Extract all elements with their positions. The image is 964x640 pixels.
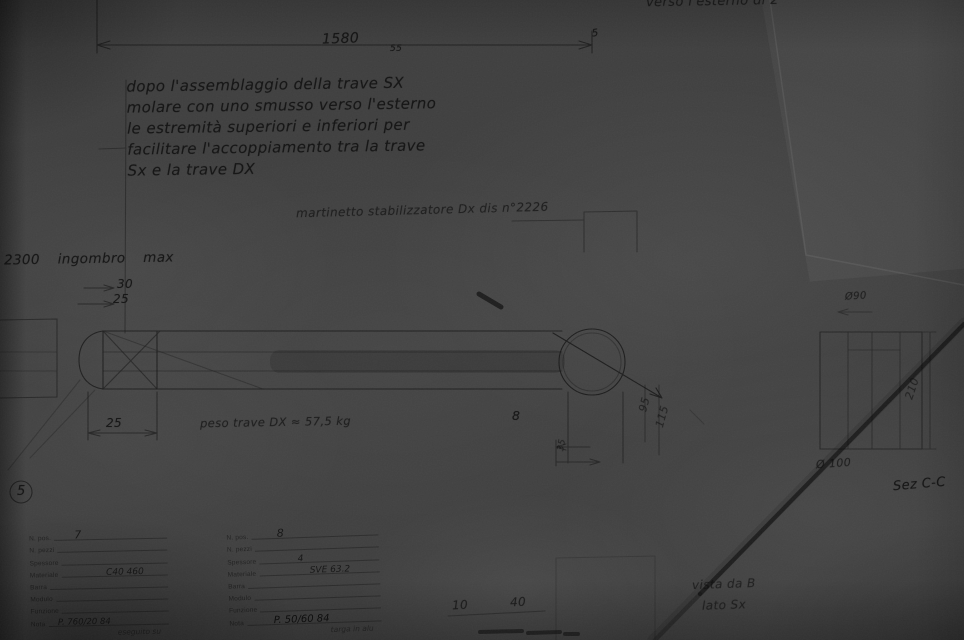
- field-label: N. pos.: [29, 535, 51, 542]
- field-value: 4: [297, 554, 303, 564]
- field-value: P. 50/60 84: [274, 613, 330, 626]
- vista-note: vista da B: [692, 576, 756, 592]
- field-line: [62, 601, 169, 614]
- field-line: [57, 540, 167, 553]
- field-value: P. 760/20 84: [58, 616, 111, 627]
- dia-100-label: Ø 100: [816, 456, 852, 471]
- field-value: 8: [277, 527, 284, 540]
- ingombro-note: 2300 ingombro max: [4, 250, 174, 269]
- field-label: Modulo: [30, 596, 53, 603]
- field-value: 7: [74, 529, 81, 542]
- field-label: Spessore: [30, 559, 59, 567]
- field-label: N. pezzi: [227, 546, 252, 554]
- field-label: Barra: [30, 584, 47, 591]
- bracket-below-circle: [556, 392, 623, 466]
- field-label: N. pezzi: [29, 547, 54, 555]
- field-value: C40 460: [106, 567, 144, 578]
- dim-25-upper-label: 25: [113, 292, 129, 306]
- dim-1580-tolerance: 55: [390, 44, 402, 54]
- dim-10-label: 10: [452, 598, 469, 613]
- dim-25-lower-label: 25: [106, 416, 122, 430]
- beam-end-circle: [553, 329, 662, 398]
- dia-90-label: Ø90: [845, 290, 867, 302]
- crease-shadow-line: [652, 0, 964, 640]
- field-line: [56, 589, 169, 602]
- blueprint-photo: dopo l'assemblaggio della trave SX molar…: [0, 0, 964, 640]
- field-label: Spessore: [227, 558, 256, 566]
- dim-25-lower-lines: [88, 392, 157, 440]
- field-label: N. pos.: [226, 534, 248, 542]
- field-label: Modulo: [228, 595, 251, 603]
- lato-note: lato Sx: [702, 597, 747, 613]
- dark-pencil-mark: [479, 294, 501, 307]
- dim-8-label: 8: [512, 408, 520, 423]
- peso-note: peso trave DX ≈ 57,5 kg: [200, 414, 351, 431]
- field-label: Nota: [229, 620, 244, 628]
- field-line: C40 460: [61, 564, 168, 577]
- left-end-box: [0, 319, 57, 398]
- assembly-note: dopo l'assemblaggio della trave SX molar…: [126, 71, 497, 181]
- dim-5-label: 5: [591, 28, 599, 40]
- dim-30-label: 30: [117, 277, 133, 291]
- construction-diagonals: [8, 380, 95, 470]
- beam-shading: [270, 350, 565, 373]
- title-block-2: N. pos. 8 N. pezzi Spessore 4 Materiale …: [226, 524, 382, 637]
- field-label: Nota: [31, 621, 46, 628]
- dim-35-label: 35: [556, 438, 568, 452]
- field-label: Barra: [228, 583, 245, 591]
- dim-40-label: 40: [510, 595, 527, 610]
- martinetto-leader: [512, 211, 637, 252]
- field-line: [61, 552, 167, 565]
- field-line: P. 760/20 84: [48, 613, 169, 627]
- dim-1580-label: 1580: [322, 30, 360, 47]
- title-block-1: N. pos. 7 N. pezzi Spessore Materiale C4…: [29, 528, 169, 638]
- bottom-center-marks: [448, 556, 655, 640]
- balloon-5-label: 5: [17, 484, 26, 499]
- left-small-dims: [78, 285, 114, 307]
